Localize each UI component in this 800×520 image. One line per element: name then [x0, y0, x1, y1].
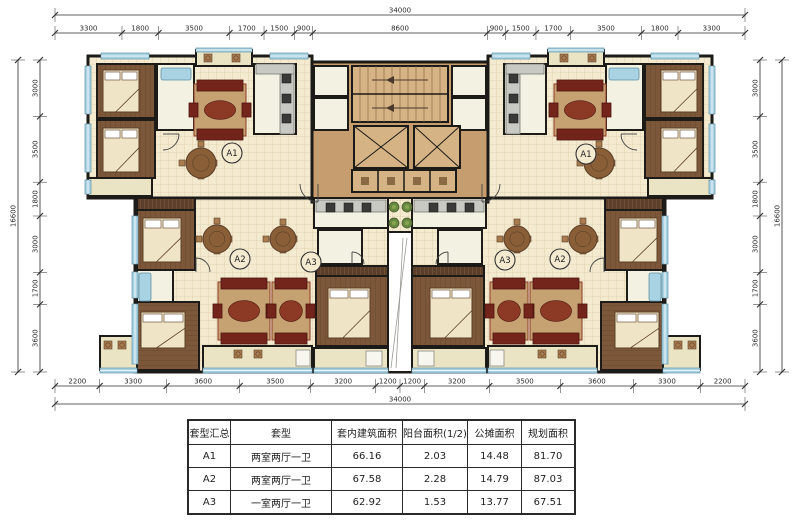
summary-cell: 两室两厅一卫 [231, 468, 332, 491]
dimension-label: 3200 [448, 378, 466, 386]
summary-data-row: A2两室两厅一卫67.582.2814.7987.03 [188, 468, 575, 491]
appliance-icon [447, 203, 456, 212]
summary-cell: 2.03 [403, 445, 468, 468]
sofa-set-icon [267, 278, 315, 344]
summary-cell: 一室两厅一卫 [231, 491, 332, 515]
dimension-label: 3500 [752, 140, 760, 158]
dimension-label: 3000 [752, 235, 760, 253]
kitchen-counter-icon [506, 64, 544, 74]
room-wardrobe [137, 198, 195, 210]
dimension-label: 3000 [32, 235, 40, 253]
summary-cell: 81.70 [522, 445, 576, 468]
dimension-label: 1800 [752, 190, 760, 208]
dimension-label: 3500 [32, 140, 40, 158]
bathtub-icon [161, 68, 191, 80]
unit-label-a2: A2 [550, 249, 570, 269]
summary-cell: 67.51 [522, 491, 576, 515]
unit-label-a1: A1 [222, 143, 242, 163]
chair-icon [204, 54, 212, 62]
summary-cell: 两室两厅一卫 [231, 445, 332, 468]
floorplan-page: A1A2A3A3A2A13400033001800350017001500900… [0, 0, 800, 520]
dimension-label: 3000 [752, 79, 760, 97]
dimension-label: 1700 [544, 25, 562, 33]
duct-shaft-icon [352, 170, 456, 192]
plant-icon [389, 202, 399, 212]
appliance-icon [282, 114, 291, 123]
sofa-set-icon [213, 278, 275, 344]
bed-icon [430, 288, 472, 338]
room-wardrobe [412, 266, 484, 276]
bed-icon [661, 128, 697, 172]
dimension-label: 1200 [379, 378, 397, 386]
chair-icon [560, 54, 568, 62]
summary-header-cell: 阳台面积(1/2) [403, 420, 468, 445]
dimension-label: 1700 [32, 279, 40, 297]
room-bath [452, 66, 486, 96]
bed-icon [143, 218, 181, 262]
dimension-label: 3300 [124, 378, 142, 386]
sofa-set-icon [549, 80, 611, 140]
unit-label-a1: A1 [576, 144, 596, 164]
sofa-set-icon [525, 278, 587, 344]
summary-cell: 87.03 [522, 468, 576, 491]
dimension-label: 1500 [512, 25, 530, 33]
dimension-label: 3600 [194, 378, 212, 386]
appliance-icon [282, 74, 291, 83]
appliance-icon [362, 203, 371, 212]
summary-header-cell: 公摊面积 [468, 420, 522, 445]
dimension-label: 3600 [752, 329, 760, 347]
dimension-label: 3000 [32, 79, 40, 97]
room-white [388, 232, 412, 372]
summary-cell: 2.28 [403, 468, 468, 491]
summary-cell: 14.48 [468, 445, 522, 468]
dimension-label: 3500 [185, 25, 203, 33]
planter-box-icon [418, 351, 434, 366]
dimension-label: 3500 [516, 378, 534, 386]
bed-icon [103, 70, 139, 112]
dimension-label: 3300 [80, 25, 98, 33]
unit-label-a2: A2 [230, 249, 250, 269]
unit-summary-table: 套型汇总套型套内建筑面积阳台面积(1/2)公摊面积规划面积A1两室两厅一卫66.… [187, 419, 576, 515]
elevator-icon [414, 126, 460, 168]
appliance-icon [326, 203, 335, 212]
dimension-label: 1800 [32, 190, 40, 208]
dimension-label: 8600 [391, 25, 409, 33]
summary-data-row: A3一室两厅一卫62.921.5313.7767.51 [188, 491, 575, 515]
dimension-label: 34000 [389, 7, 411, 15]
chair-icon [104, 341, 112, 349]
dimension-label: 3600 [588, 378, 606, 386]
room-wardrobe [605, 198, 663, 210]
summary-cell: 66.16 [332, 445, 403, 468]
svg-text:A2: A2 [234, 255, 245, 265]
bed-icon [661, 70, 697, 112]
svg-text:A1: A1 [580, 150, 591, 160]
unit-label-a3: A3 [301, 252, 321, 272]
bed-icon [141, 312, 185, 348]
dimension-label: 3500 [266, 378, 284, 386]
sofa-set-icon [189, 80, 251, 140]
appliance-icon [429, 203, 438, 212]
dimension-label: 3300 [658, 378, 676, 386]
appliance-icon [282, 94, 291, 103]
dimension-label: 3300 [703, 25, 721, 33]
dimension-label: 1500 [270, 25, 288, 33]
chair-icon [688, 341, 696, 349]
chair-icon [538, 350, 546, 358]
dimension-label: 900 [490, 25, 503, 33]
chair-icon [558, 350, 566, 358]
dimension-label: 16600 [10, 205, 18, 227]
summary-header-cell: 套型 [231, 420, 332, 445]
summary-cell: A1 [188, 445, 231, 468]
chair-icon [234, 350, 242, 358]
svg-text:A2: A2 [554, 255, 565, 265]
bed-icon [328, 288, 370, 338]
summary-cell: A2 [188, 468, 231, 491]
bathtub-icon [609, 68, 639, 80]
room-bath [314, 98, 348, 130]
summary-cell: 14.79 [468, 468, 522, 491]
dimension-label: 34000 [389, 396, 411, 404]
summary-data-row: A1两室两厅一卫66.162.0314.4881.70 [188, 445, 575, 468]
unit-label-a3: A3 [495, 250, 515, 270]
plant-icon [402, 218, 412, 228]
svg-text:A1: A1 [226, 149, 237, 159]
dimension-label: 1700 [238, 25, 256, 33]
plant-icon [402, 202, 412, 212]
chair-icon [118, 341, 126, 349]
appliance-icon [509, 114, 518, 123]
dimension-label: 2200 [68, 378, 86, 386]
summary-cell: A3 [188, 491, 231, 515]
room-balcony [648, 178, 712, 196]
summary-cell: 13.77 [468, 491, 522, 515]
elevator-icon [354, 126, 408, 168]
chair-icon [232, 54, 240, 62]
room-wardrobe [316, 266, 388, 276]
dimension-label: 16600 [774, 205, 782, 227]
kitchen-counter-icon [256, 64, 294, 74]
staircase-icon [352, 66, 448, 122]
bed-icon [619, 218, 657, 262]
planter-box-icon [490, 350, 504, 366]
unit-summary-table-grid: 套型汇总套型套内建筑面积阳台面积(1/2)公摊面积规划面积A1两室两厅一卫66.… [187, 419, 576, 515]
summary-cell: 62.92 [332, 491, 403, 515]
room-bath [438, 230, 482, 264]
appliance-icon [465, 203, 474, 212]
summary-header-cell: 套型汇总 [188, 420, 231, 445]
room-balcony [88, 178, 152, 196]
summary-header-cell: 套内建筑面积 [332, 420, 403, 445]
planter-box-icon [366, 351, 382, 366]
dimension-label: 1800 [651, 25, 669, 33]
dimension-label: 1800 [131, 25, 149, 33]
summary-header-row: 套型汇总套型套内建筑面积阳台面积(1/2)公摊面积规划面积 [188, 420, 575, 445]
svg-text:A3: A3 [305, 258, 316, 268]
chair-icon [254, 350, 262, 358]
dimension-label: 1200 [403, 378, 421, 386]
dimension-label: 900 [297, 25, 310, 33]
dimension-label: 3600 [32, 329, 40, 347]
sofa-set-icon [485, 278, 533, 344]
svg-text:A3: A3 [499, 256, 510, 266]
appliance-icon [509, 74, 518, 83]
appliance-icon [344, 203, 353, 212]
dimension-label: 2200 [714, 378, 732, 386]
room-bath [318, 230, 362, 264]
dimension-label: 3500 [597, 25, 615, 33]
bed-icon [615, 312, 659, 348]
summary-cell: 1.53 [403, 491, 468, 515]
room-bath [314, 66, 348, 96]
chair-icon [674, 341, 682, 349]
appliance-icon [509, 94, 518, 103]
planter-box-icon [296, 350, 310, 366]
summary-cell: 67.58 [332, 468, 403, 491]
dimension-label: 3200 [334, 378, 352, 386]
chair-icon [588, 54, 596, 62]
dimension-label: 1700 [752, 279, 760, 297]
summary-header-cell: 规划面积 [522, 420, 576, 445]
plant-icon [389, 218, 399, 228]
bathtub-icon [649, 273, 661, 301]
bathtub-icon [139, 273, 151, 301]
bed-icon [103, 128, 139, 172]
